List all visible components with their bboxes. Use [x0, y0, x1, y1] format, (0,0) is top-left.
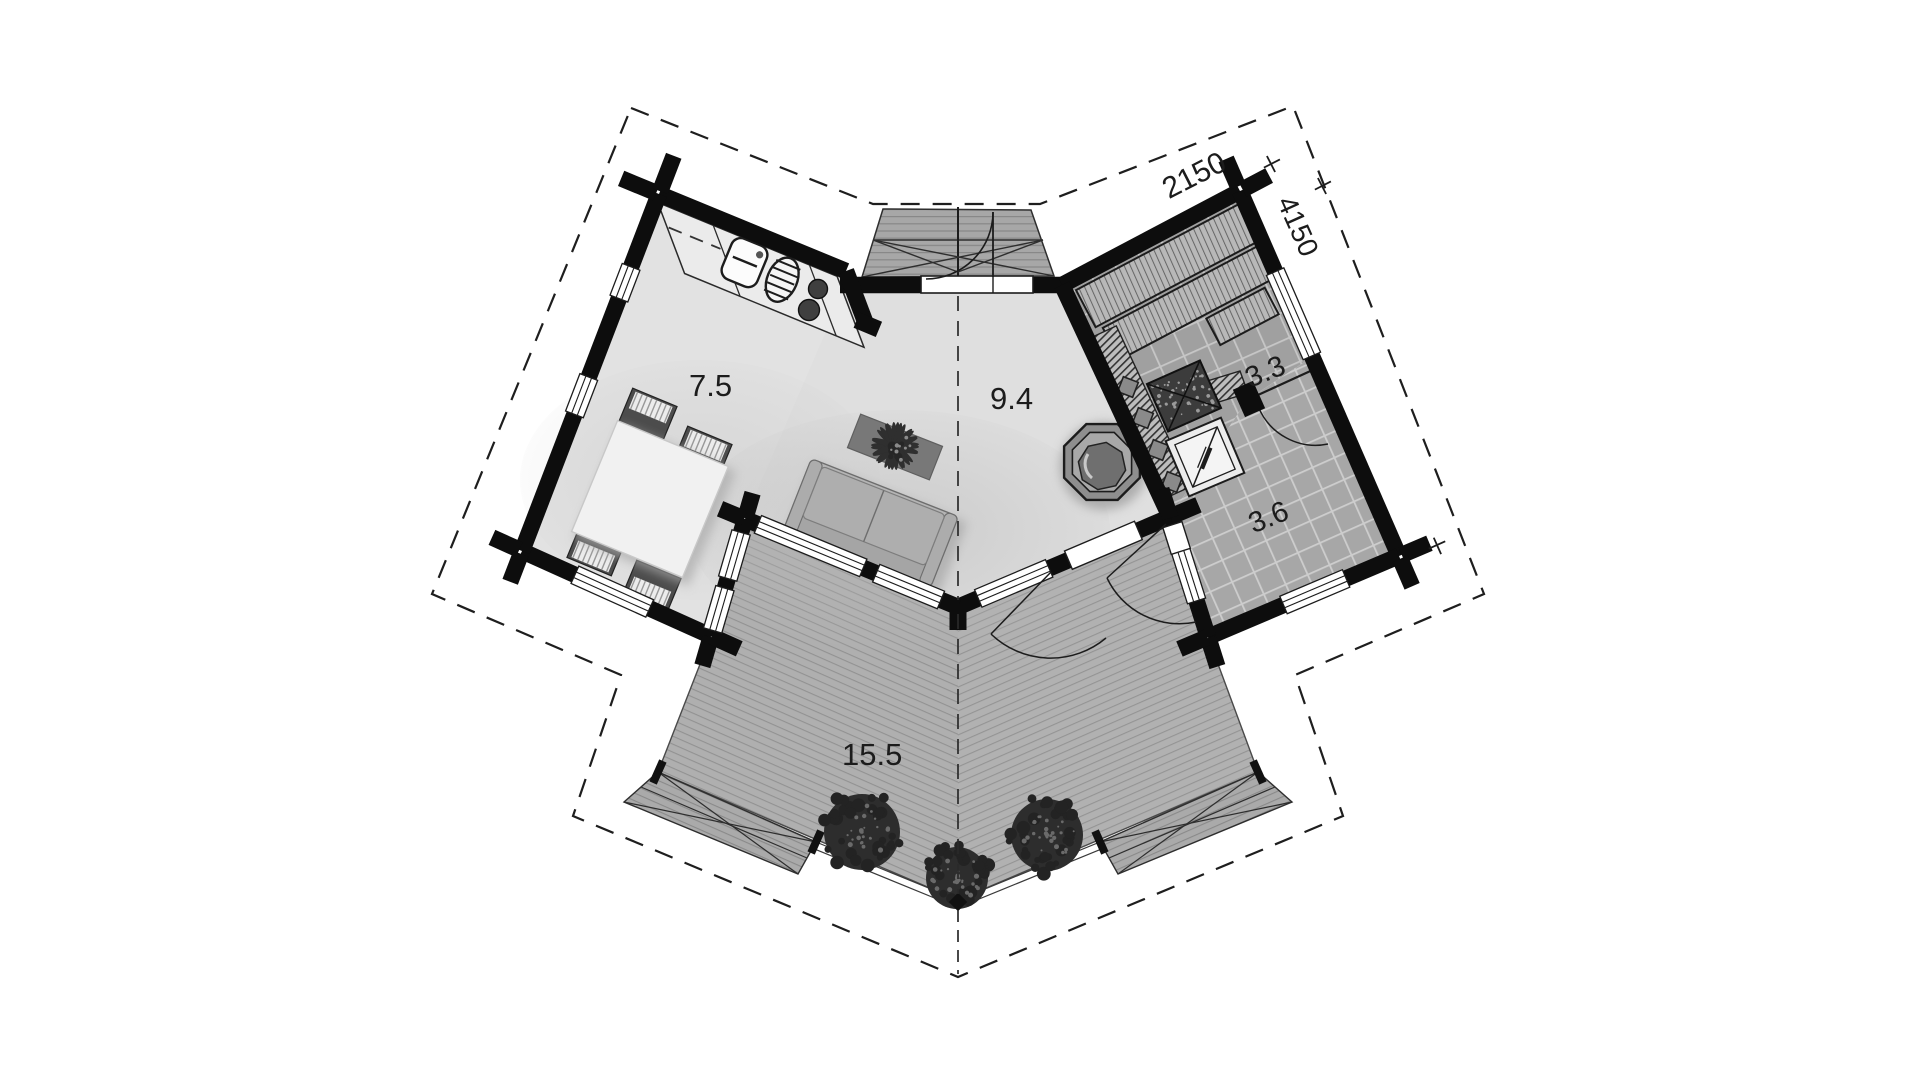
- svg-text:15.5: 15.5: [842, 737, 902, 772]
- svg-text:7.5: 7.5: [689, 368, 732, 403]
- svg-text:9.4: 9.4: [990, 381, 1033, 416]
